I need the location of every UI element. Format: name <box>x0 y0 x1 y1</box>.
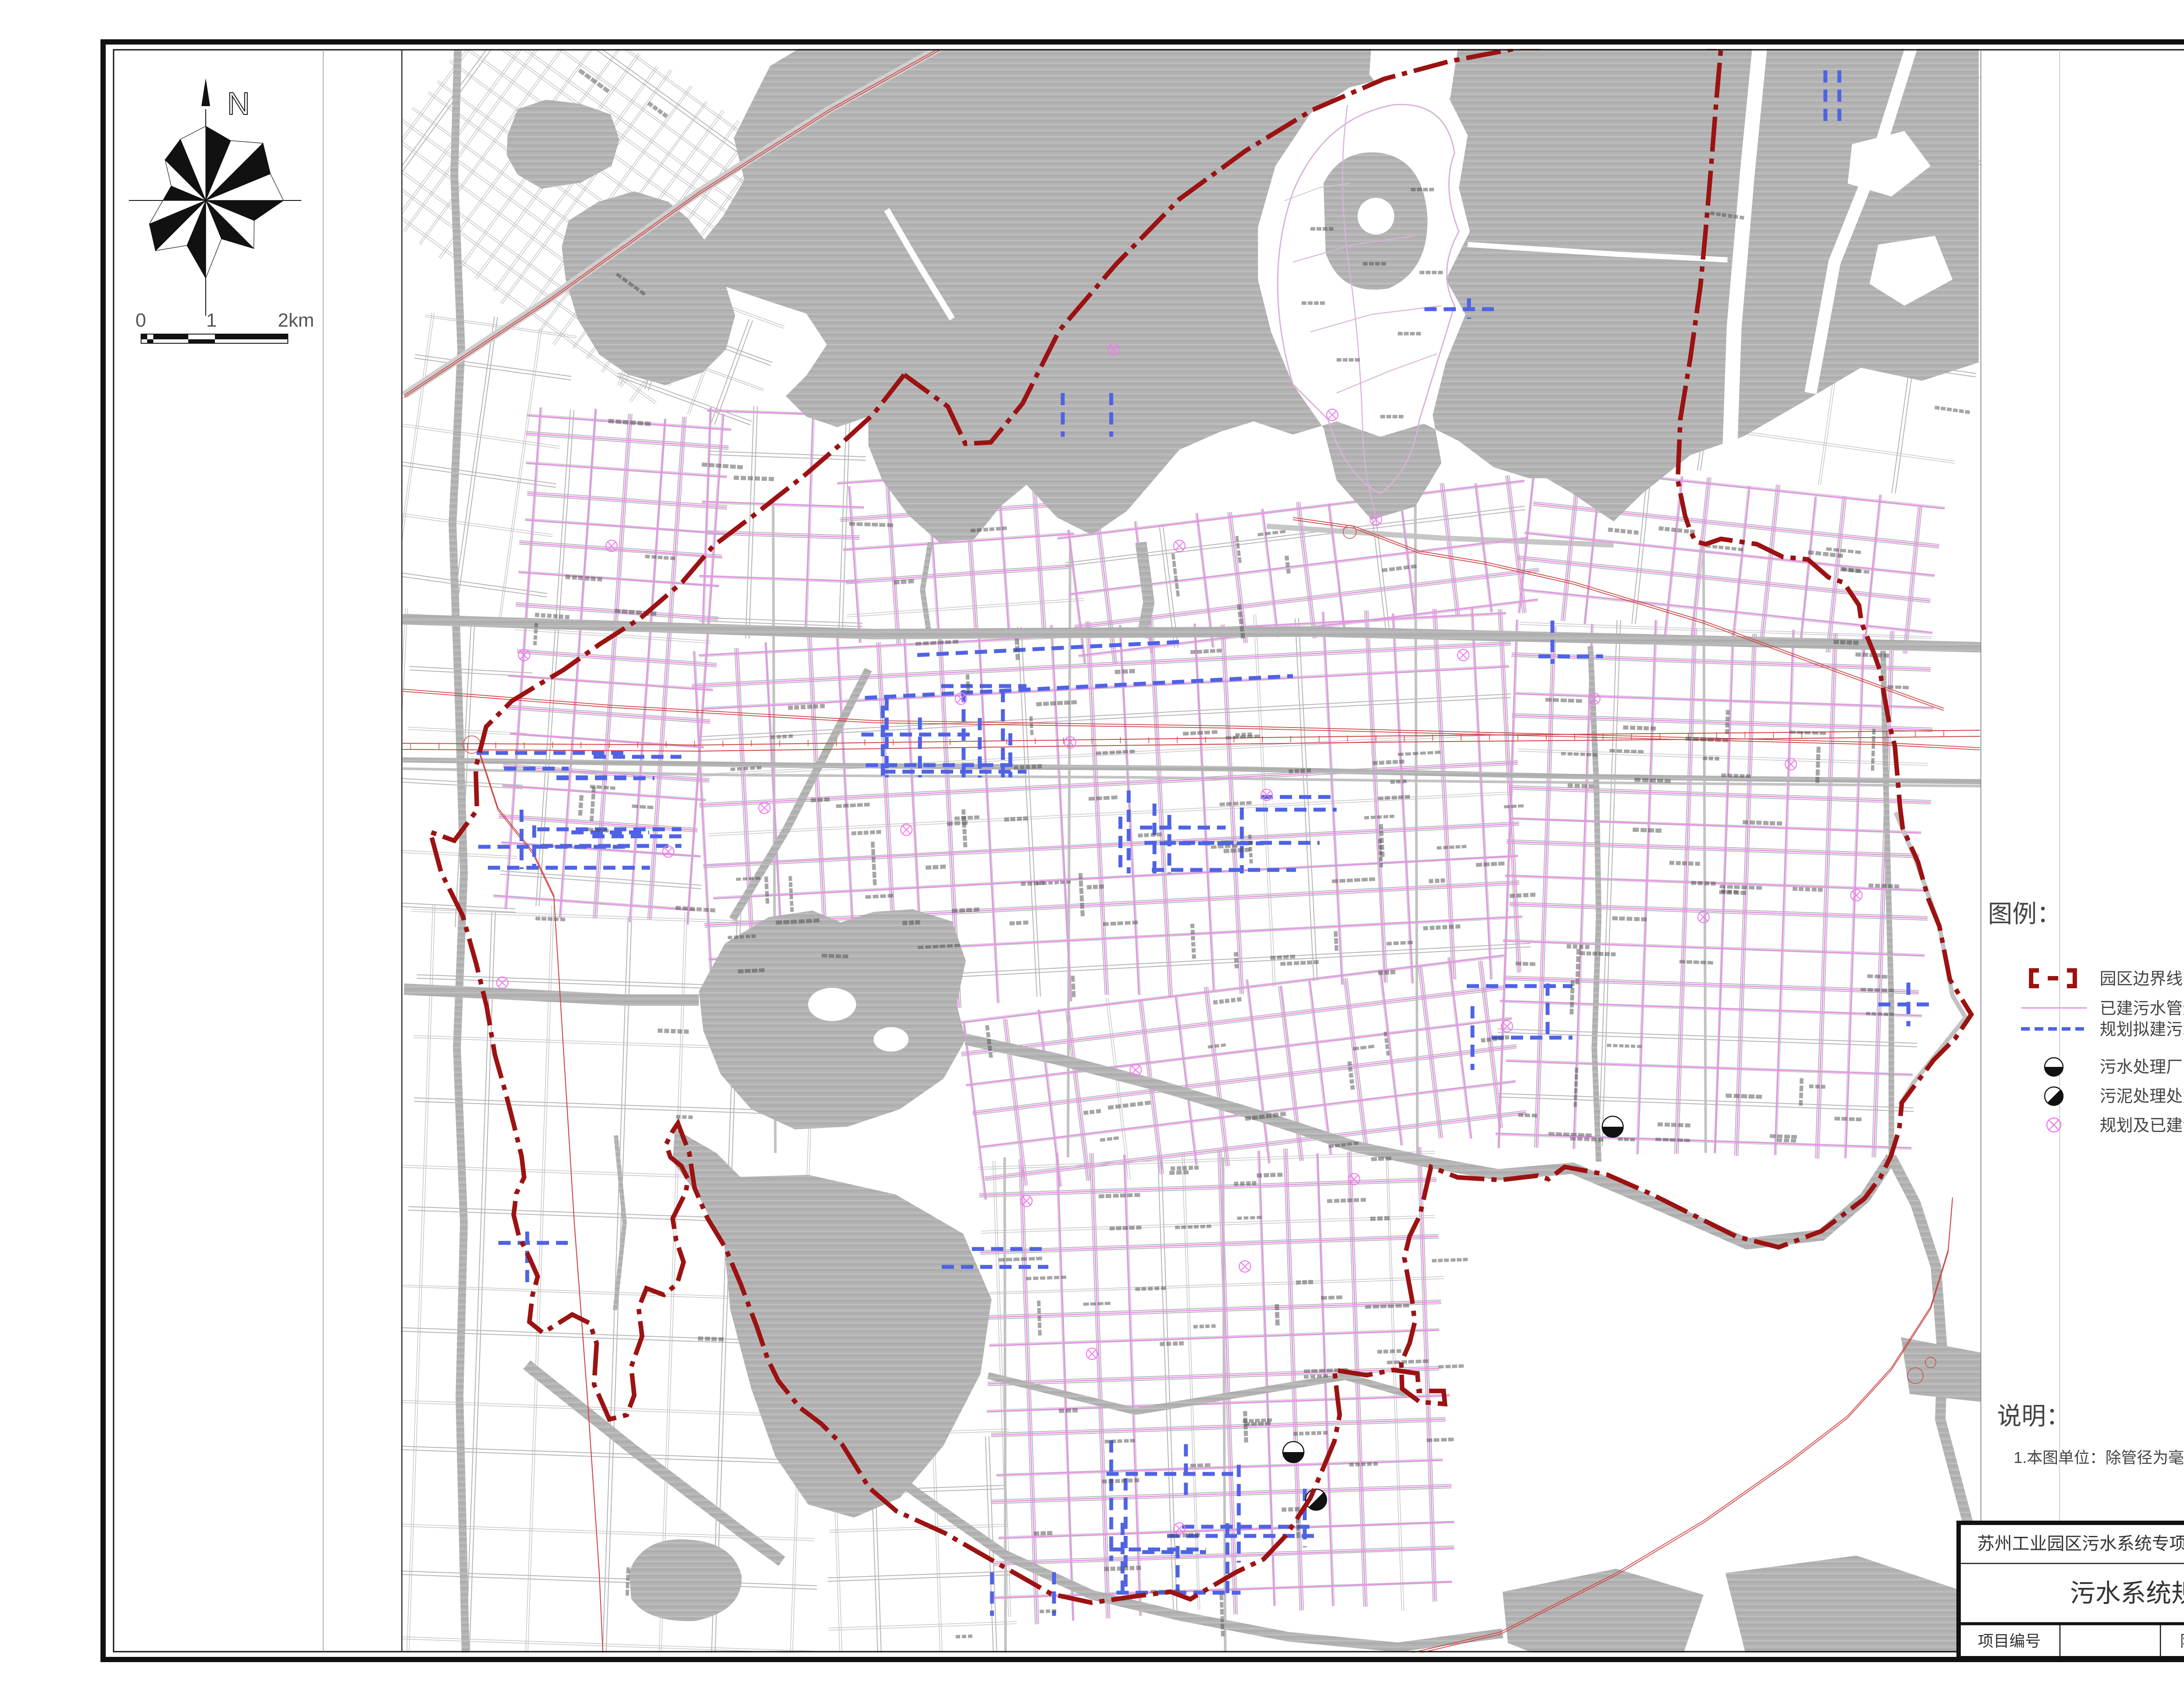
svg-text:污水处理厂: 污水处理厂 <box>2100 1058 2183 1076</box>
svg-text:附图编号: 附图编号 <box>2180 1632 2184 1650</box>
svg-text:规划拟建污水管道: 规划拟建污水管道 <box>2100 1021 2184 1039</box>
svg-text:已建污水管道: 已建污水管道 <box>2100 1000 2184 1018</box>
svg-text:说明：: 说明： <box>1997 1402 2070 1430</box>
svg-text:规划及已建污水泵站: 规划及已建污水泵站 <box>2100 1117 2184 1135</box>
svg-text:污泥处理处置厂: 污泥处理处置厂 <box>2100 1087 2184 1106</box>
svg-text:0: 0 <box>135 310 146 331</box>
svg-text:项目编号: 项目编号 <box>1978 1632 2041 1650</box>
svg-text:N: N <box>227 86 250 121</box>
svg-text:1: 1 <box>206 310 217 331</box>
svg-text:1.本图单位：除管径为毫米外，其余均为米。: 1.本图单位：除管径为毫米外，其余均为米。 <box>2014 1449 2184 1466</box>
svg-text:苏州工业园区污水系统专项规划（2015-2030）: 苏州工业园区污水系统专项规划（2015-2030） <box>1977 1534 2184 1553</box>
svg-text:园区边界线: 园区边界线 <box>2100 970 2183 988</box>
svg-text:污水系统规划图: 污水系统规划图 <box>2070 1579 2184 1608</box>
svg-text:图例：: 图例： <box>1988 900 2061 928</box>
svg-text:2km: 2km <box>278 310 314 331</box>
